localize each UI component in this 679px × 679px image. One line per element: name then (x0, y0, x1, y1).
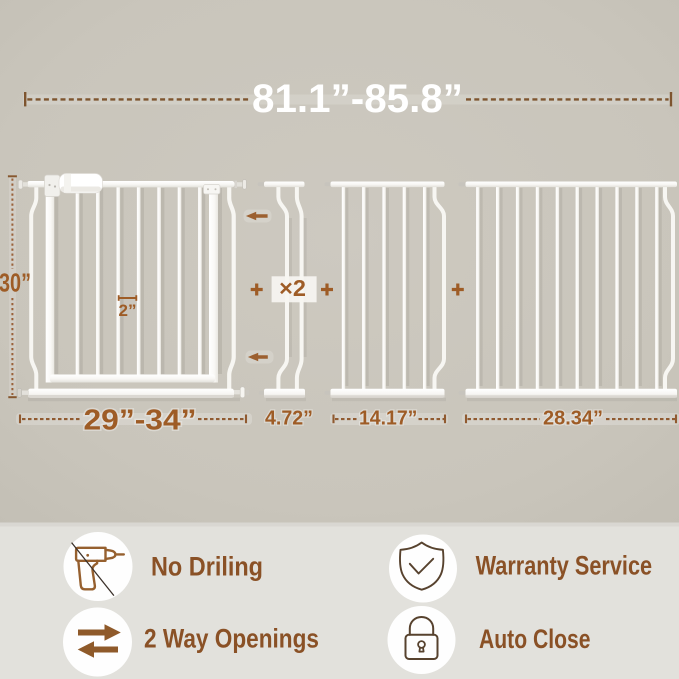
svg-text:28.34”: 28.34” (543, 407, 603, 430)
svg-text:No Driling: No Driling (151, 551, 263, 581)
svg-text:29”-34”: 29”-34” (84, 405, 197, 437)
svg-text:4.72”: 4.72” (265, 406, 313, 429)
svg-text:2 Way Openings: 2 Way Openings (144, 624, 319, 654)
svg-text:30”: 30” (0, 268, 31, 298)
svg-text:14.17”: 14.17” (359, 407, 418, 430)
svg-text:Warranty Service: Warranty Service (476, 551, 652, 581)
svg-text:81.1”-85.8”: 81.1”-85.8” (252, 77, 463, 121)
svg-text:2”: 2” (119, 302, 137, 320)
svg-text:Auto Close: Auto Close (479, 624, 591, 654)
svg-text:×2: ×2 (279, 275, 306, 301)
